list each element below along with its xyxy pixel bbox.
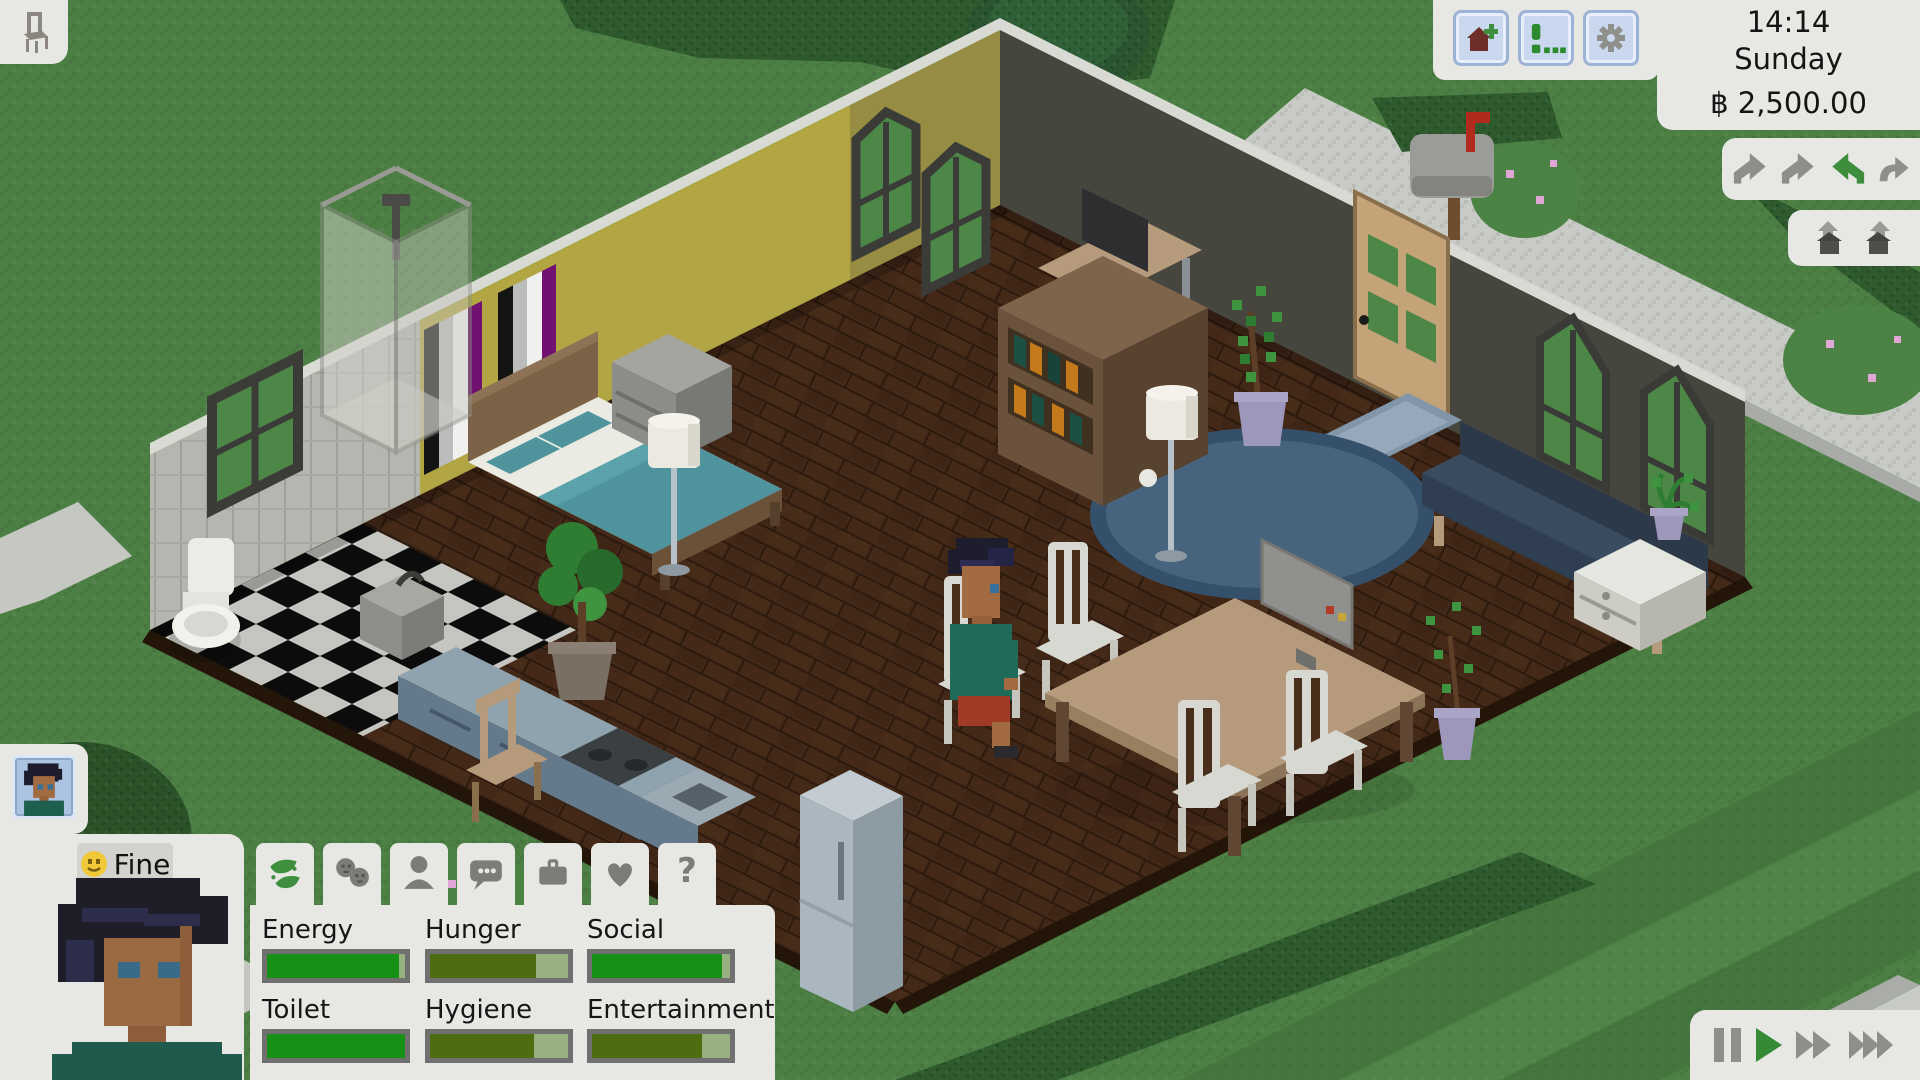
need-social: Social	[587, 915, 749, 983]
pause-icon	[1714, 1027, 1742, 1063]
need-bar	[262, 949, 410, 983]
character-bust	[46, 878, 244, 1080]
top-bar	[1433, 0, 1659, 80]
wall-up-button[interactable]	[1811, 220, 1847, 256]
character-portrait-icon	[15, 758, 73, 816]
briefcase-icon	[534, 854, 572, 892]
speech-bubble-icon	[467, 854, 505, 892]
rotate-active-icon	[1825, 149, 1869, 189]
play-icon	[1755, 1027, 1783, 1063]
game-screen: 14:14 Sunday ฿ 2,500.00	[0, 0, 1920, 1080]
roof-up-button[interactable]	[1861, 220, 1897, 256]
fastest-button[interactable]	[1849, 1027, 1897, 1063]
fastest-icon	[1849, 1027, 1897, 1063]
chair-icon	[14, 10, 54, 54]
people-icon	[333, 854, 371, 892]
smiley-face-icon	[80, 850, 108, 878]
tab-social[interactable]	[457, 843, 515, 906]
character-thumb-panel	[0, 744, 88, 834]
tab-romance[interactable]	[591, 843, 649, 906]
rotate-right-icon	[1873, 151, 1913, 187]
heart-icon	[601, 854, 639, 892]
build-mode-button[interactable]	[0, 0, 68, 64]
floor-panel	[1788, 210, 1920, 266]
need-energy: Energy	[262, 915, 425, 983]
camera-panel	[1722, 138, 1920, 200]
question-icon: ?	[677, 854, 697, 888]
tab-needs[interactable]	[256, 843, 314, 906]
wall-up-icon	[1811, 220, 1847, 256]
character-panel: Fine	[0, 834, 244, 1080]
notifications-button[interactable]	[1518, 10, 1574, 66]
need-bar	[587, 1029, 735, 1063]
need-bar	[262, 1029, 410, 1063]
cup[interactable]	[1139, 469, 1157, 487]
person-icon	[400, 854, 438, 892]
build-house-button[interactable]	[1453, 10, 1509, 66]
bookshelf[interactable]	[998, 256, 1208, 506]
roof-up-icon	[1861, 220, 1897, 256]
house-plus-icon	[1464, 22, 1498, 54]
need-bar	[425, 949, 573, 983]
pause-button[interactable]	[1714, 1027, 1742, 1063]
tab-career[interactable]	[524, 843, 582, 906]
character-portrait-button[interactable]	[12, 755, 76, 819]
settings-button[interactable]	[1583, 10, 1639, 66]
gear-icon	[1594, 21, 1628, 55]
rotate-active-button[interactable]	[1825, 149, 1869, 189]
fast-forward-button[interactable]	[1796, 1027, 1836, 1063]
need-entertainment: Entertainment	[587, 995, 749, 1063]
leaf-icon	[266, 854, 304, 892]
rotate-left-button[interactable]	[1777, 149, 1821, 189]
needs-panel: Energy Hunger Social Toilet Hygiene Ente…	[250, 905, 775, 1080]
fridge[interactable]	[800, 770, 903, 1012]
exclamation-dots-icon	[1525, 21, 1567, 55]
need-hunger: Hunger	[425, 915, 587, 983]
fast-forward-icon	[1796, 1027, 1836, 1063]
rotate-left-icon	[1777, 149, 1821, 189]
tab-help[interactable]: ?	[658, 843, 716, 906]
time: 14:14	[1747, 4, 1831, 41]
need-hygiene: Hygiene	[425, 995, 587, 1063]
tab-character[interactable]	[390, 843, 448, 906]
mood-label: Fine	[114, 848, 171, 881]
rotate-left-button[interactable]	[1729, 149, 1773, 189]
need-toilet: Toilet	[262, 995, 425, 1063]
tab-relationships[interactable]	[323, 843, 381, 906]
rotate-right-button[interactable]	[1873, 151, 1913, 187]
playback-panel	[1690, 1010, 1920, 1080]
rotate-left-icon	[1729, 149, 1773, 189]
day: Sunday	[1734, 41, 1843, 78]
need-bar	[425, 1029, 573, 1063]
play-button[interactable]	[1755, 1027, 1783, 1063]
need-bar	[587, 949, 735, 983]
funds: ฿ 2,500.00	[1710, 86, 1867, 120]
clock-panel: 14:14 Sunday ฿ 2,500.00	[1657, 0, 1920, 130]
